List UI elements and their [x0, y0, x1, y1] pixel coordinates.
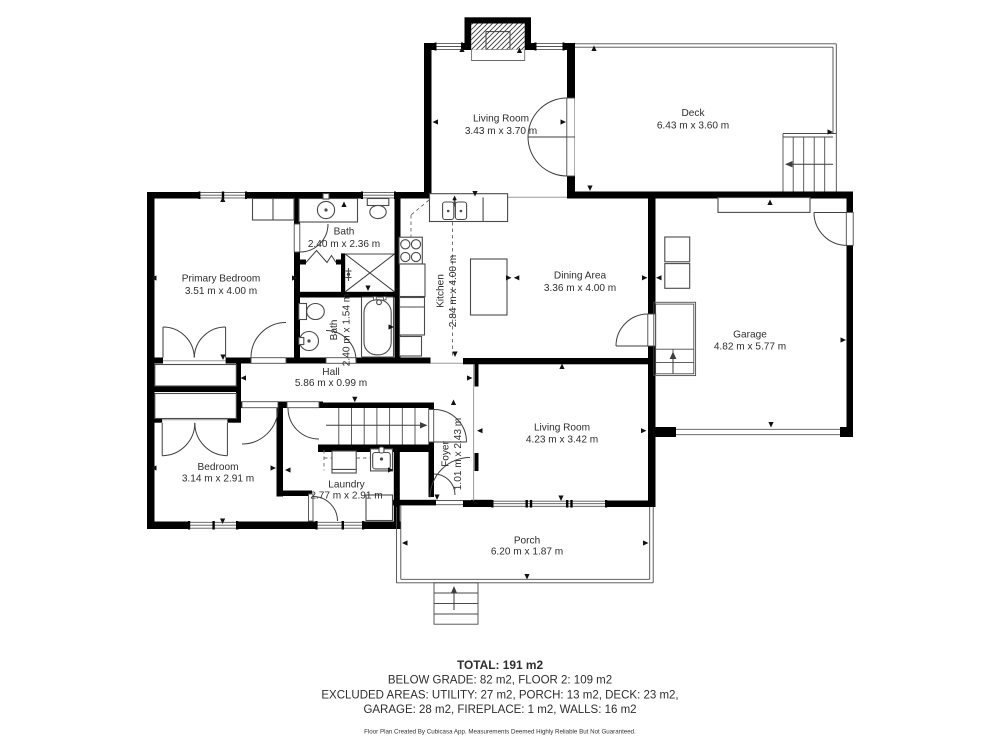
- svg-text:Deck: Deck: [682, 108, 706, 119]
- svg-text:3.14 m x 2.91 m: 3.14 m x 2.91 m: [182, 474, 254, 485]
- svg-text:Bath: Bath: [334, 227, 355, 238]
- svg-text:Hall: Hall: [322, 367, 339, 378]
- svg-text:Laundry: Laundry: [328, 480, 365, 491]
- svg-text:Living Room: Living Room: [473, 114, 529, 125]
- svg-text:5.86 m x 0.99 m: 5.86 m x 0.99 m: [295, 378, 367, 389]
- svg-text:6.20 m x 1.87 m: 6.20 m x 1.87 m: [491, 547, 563, 558]
- svg-text:Bedroom: Bedroom: [198, 462, 239, 473]
- svg-text:2.40 m x 1.54 m: 2.40 m x 1.54 m: [342, 294, 353, 366]
- svg-text:Bath: Bath: [329, 320, 340, 341]
- svg-text:3.51 m x 4.00 m: 3.51 m x 4.00 m: [185, 286, 257, 297]
- svg-text:BELOW GRADE: 82 m2, FLOOR 2: 1: BELOW GRADE: 82 m2, FLOOR 2: 109 m2: [388, 674, 612, 686]
- svg-text:Kitchen: Kitchen: [436, 274, 447, 308]
- svg-text:Floor Plan Created By Cubicasa: Floor Plan Created By Cubicasa App. Meas…: [364, 729, 636, 736]
- svg-text:6.43 m x 3.60 m: 6.43 m x 3.60 m: [657, 121, 729, 132]
- svg-text:Living Room: Living Room: [534, 423, 590, 434]
- svg-text:Foyer: Foyer: [441, 440, 452, 466]
- svg-text:Porch: Porch: [514, 536, 540, 547]
- svg-text:4.23 m x 3.42 m: 4.23 m x 3.42 m: [526, 435, 598, 446]
- svg-text:3.43 m x 3.70 m: 3.43 m x 3.70 m: [465, 126, 537, 137]
- svg-text:EXCLUDED AREAS: UTILITY: 27 m2: EXCLUDED AREAS: UTILITY: 27 m2, PORCH: 1…: [321, 690, 678, 702]
- svg-text:Primary Bedroom: Primary Bedroom: [182, 274, 261, 285]
- svg-text:2.84 m x 4.00 m: 2.84 m x 4.00 m: [448, 255, 459, 327]
- svg-text:GARAGE: 28 m2, FIREPLACE: 1 m2: GARAGE: 28 m2, FIREPLACE: 1 m2, WALLS: 1…: [363, 704, 636, 716]
- svg-text:Garage: Garage: [733, 330, 767, 341]
- svg-text:3.36 m x 4.00 m: 3.36 m x 4.00 m: [544, 283, 616, 294]
- svg-text:2.77 m x 2.91 m: 2.77 m x 2.91 m: [310, 491, 382, 502]
- svg-text:2.40 m x 2.36 m: 2.40 m x 2.36 m: [308, 239, 380, 250]
- svg-text:TOTAL: 191 m2: TOTAL: 191 m2: [457, 658, 544, 672]
- svg-text:Dining Area: Dining Area: [554, 271, 607, 282]
- svg-text:4.82 m x 5.77 m: 4.82 m x 5.77 m: [714, 342, 786, 353]
- svg-text:1.01 m x 2.43 m: 1.01 m x 2.43 m: [453, 418, 464, 490]
